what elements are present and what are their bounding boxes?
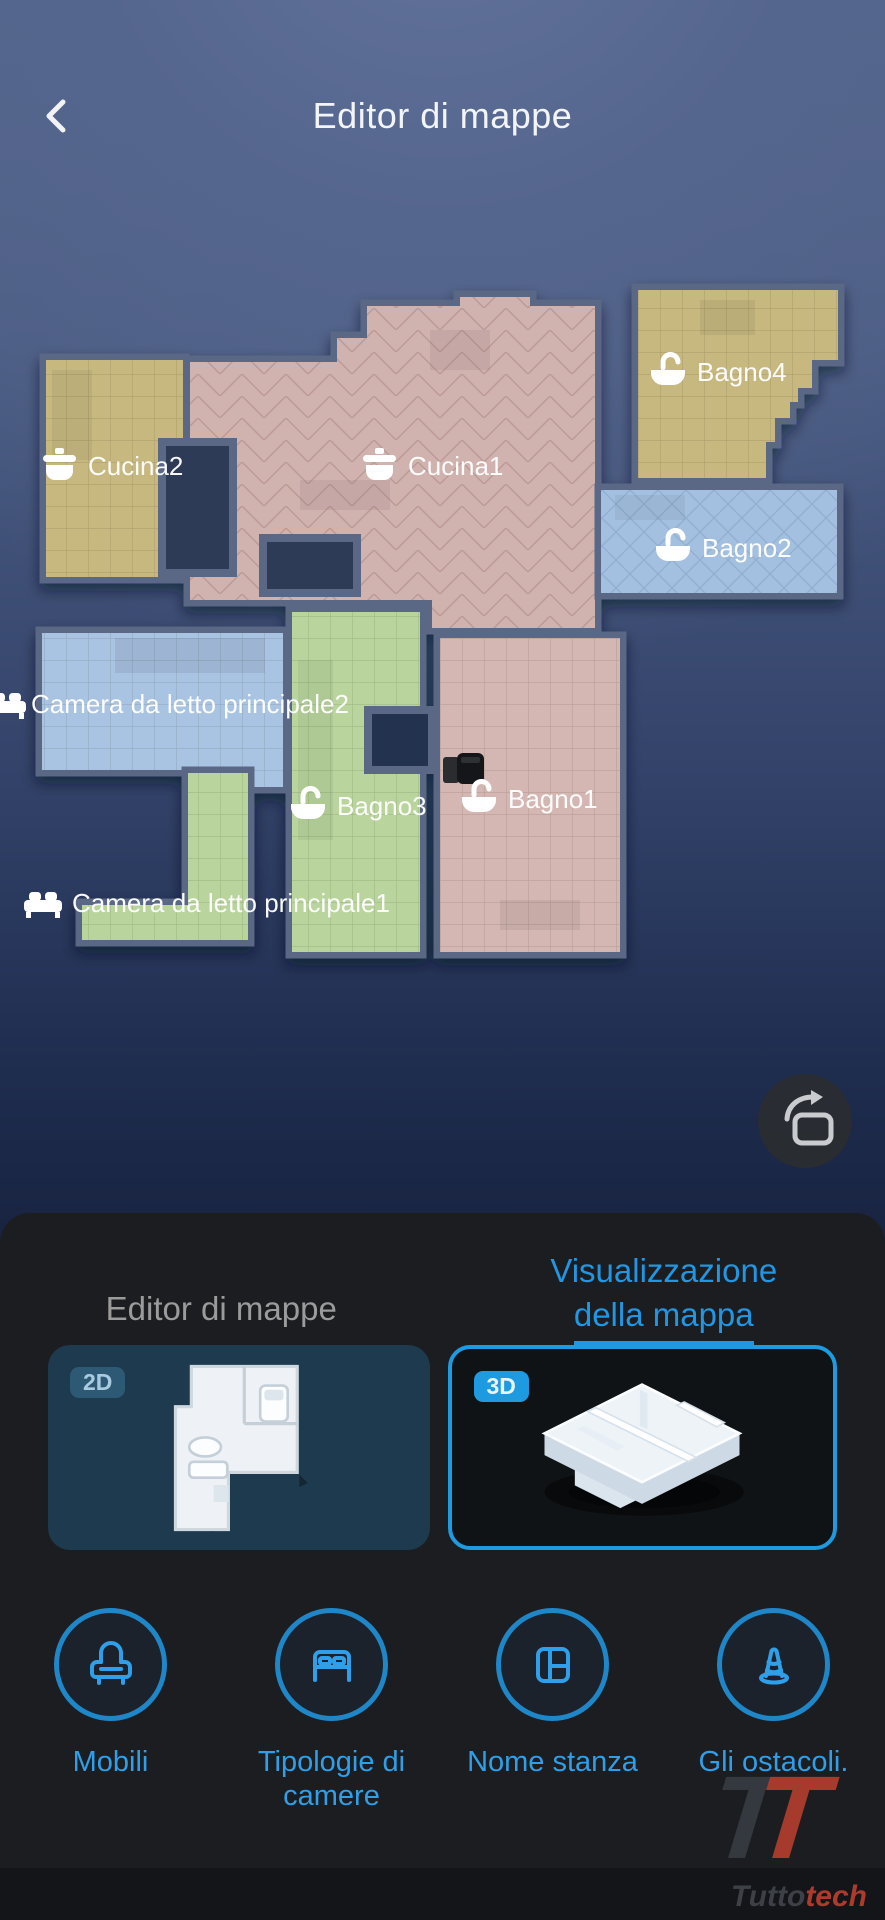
view-mode-tabs: Editor di mappe Visualizzazione della ma… [0,1249,885,1345]
badge-3d: 3D [474,1371,529,1402]
rotate-map-button[interactable] [758,1074,852,1168]
svg-text:Bagno3: Bagno3 [337,791,427,821]
double-bed-icon [304,1637,360,1693]
map-editor-screen: Cucina2 Cucina1 Bagno4 Bagno2 Camera da … [0,0,885,1920]
svg-text:Camera da letto principale2: Camera da letto principale2 [31,689,349,719]
svg-text:Cucina1: Cucina1 [408,451,503,481]
traffic-cone-icon [746,1637,802,1693]
room-layout-icon [525,1637,581,1693]
bottom-gesture-strip [0,1868,885,1920]
tool-furniture[interactable]: Mobili [0,1608,221,1813]
header: Editor di mappe [0,92,885,140]
page-title: Editor di mappe [0,92,885,140]
kitchen-island-obstacle [263,538,357,593]
rotate-icon [773,1089,837,1153]
tool-buttons-row: Mobili Tipologie di camere [0,1608,885,1813]
tab-map-view-line2: della mappa [574,1293,754,1346]
svg-text:Bagno2: Bagno2 [702,533,792,563]
tab-map-view-link[interactable]: Visualizzazione della mappa [443,1249,885,1345]
tab-map-editor[interactable]: Editor di mappe [0,1249,443,1345]
tool-room-types[interactable]: Tipologie di camere [221,1608,442,1813]
bed-icon [0,693,26,719]
svg-text:Bagno1: Bagno1 [508,784,598,814]
room-cucina1[interactable] [190,297,595,628]
svg-text:Cucina2: Cucina2 [88,451,183,481]
tool-obstacles[interactable]: Gli ostacoli. [663,1608,884,1813]
tab-map-view-line1: Visualizzazione [443,1249,885,1293]
svg-text:Camera da letto principale1: Camera da letto principale1 [72,888,390,918]
badge-2d: 2D [70,1367,125,1398]
map-style-cards: 2D [48,1345,837,1550]
room-label-camera1: Camera da letto principale1 [24,888,390,918]
robot-vacuum-icon[interactable] [443,753,484,784]
room-label-camera2: Camera da letto principale2 [0,689,349,719]
tool-room-name[interactable]: Nome stanza [442,1608,663,1813]
bed-icon [24,892,62,918]
floor-plan-map: Cucina2 Cucina1 Bagno4 Bagno2 Camera da … [0,0,885,1213]
card-3d-map[interactable]: 3D [448,1345,838,1550]
card-2d-map[interactable]: 2D [48,1345,430,1550]
armchair-icon [83,1637,139,1693]
dark-obstacle [368,710,432,770]
bottom-sheet: Editor di mappe Visualizzazione della ma… [0,1213,885,1920]
svg-text:Bagno4: Bagno4 [697,357,787,387]
